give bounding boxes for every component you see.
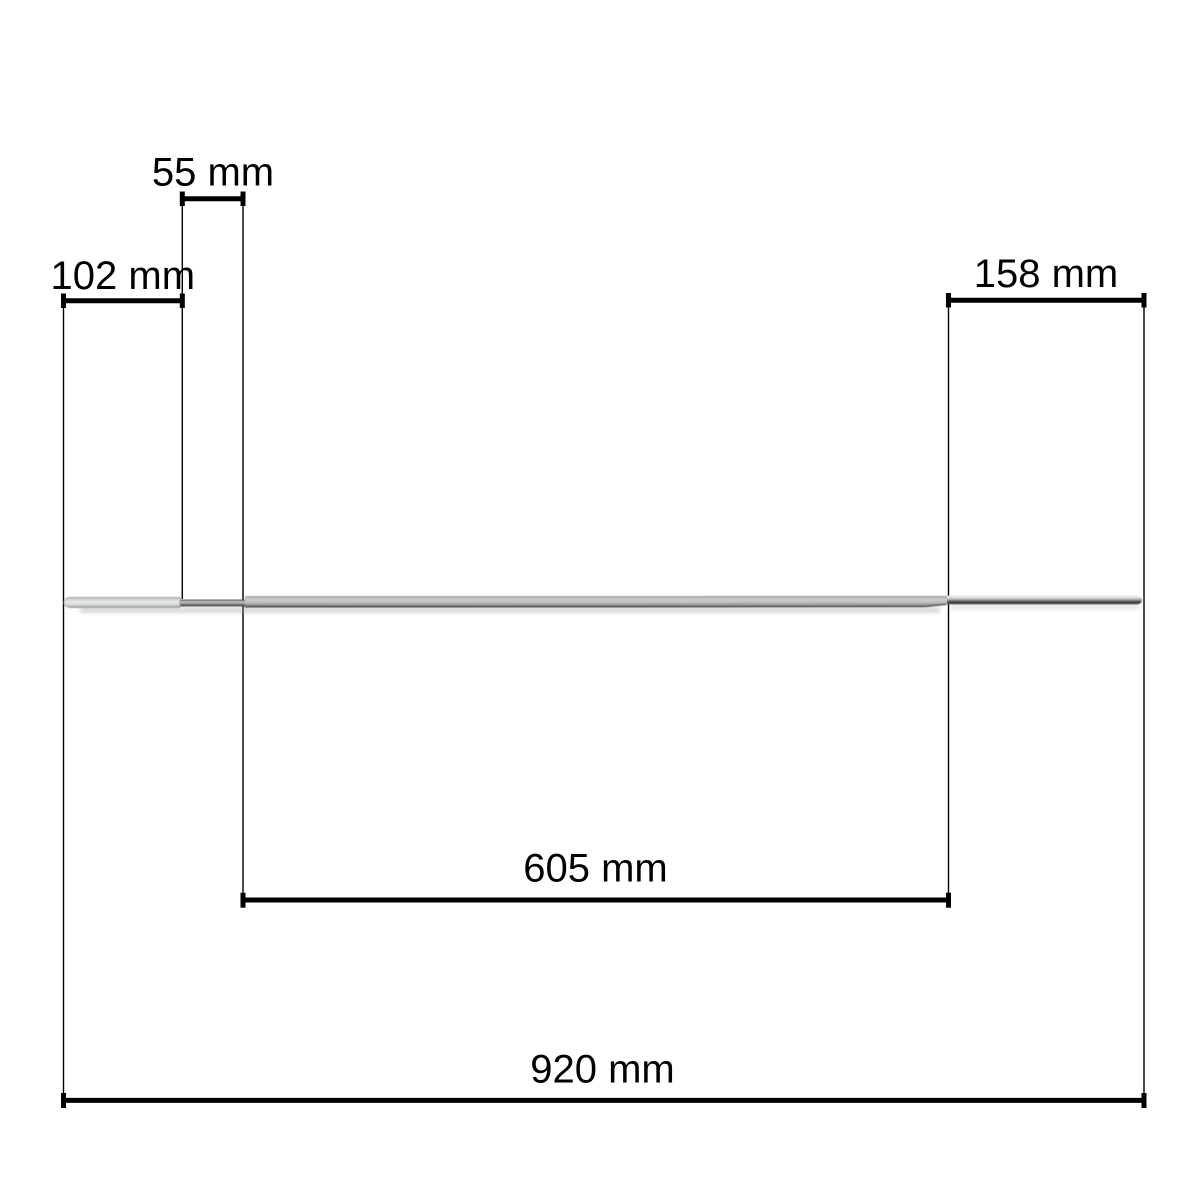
svg-text:920 mm: 920 mm — [530, 1047, 675, 1091]
svg-text:158 mm: 158 mm — [974, 252, 1119, 296]
svg-text:55 mm: 55 mm — [152, 150, 274, 194]
svg-text:605 mm: 605 mm — [523, 847, 668, 891]
svg-text:102 mm: 102 mm — [51, 254, 196, 298]
